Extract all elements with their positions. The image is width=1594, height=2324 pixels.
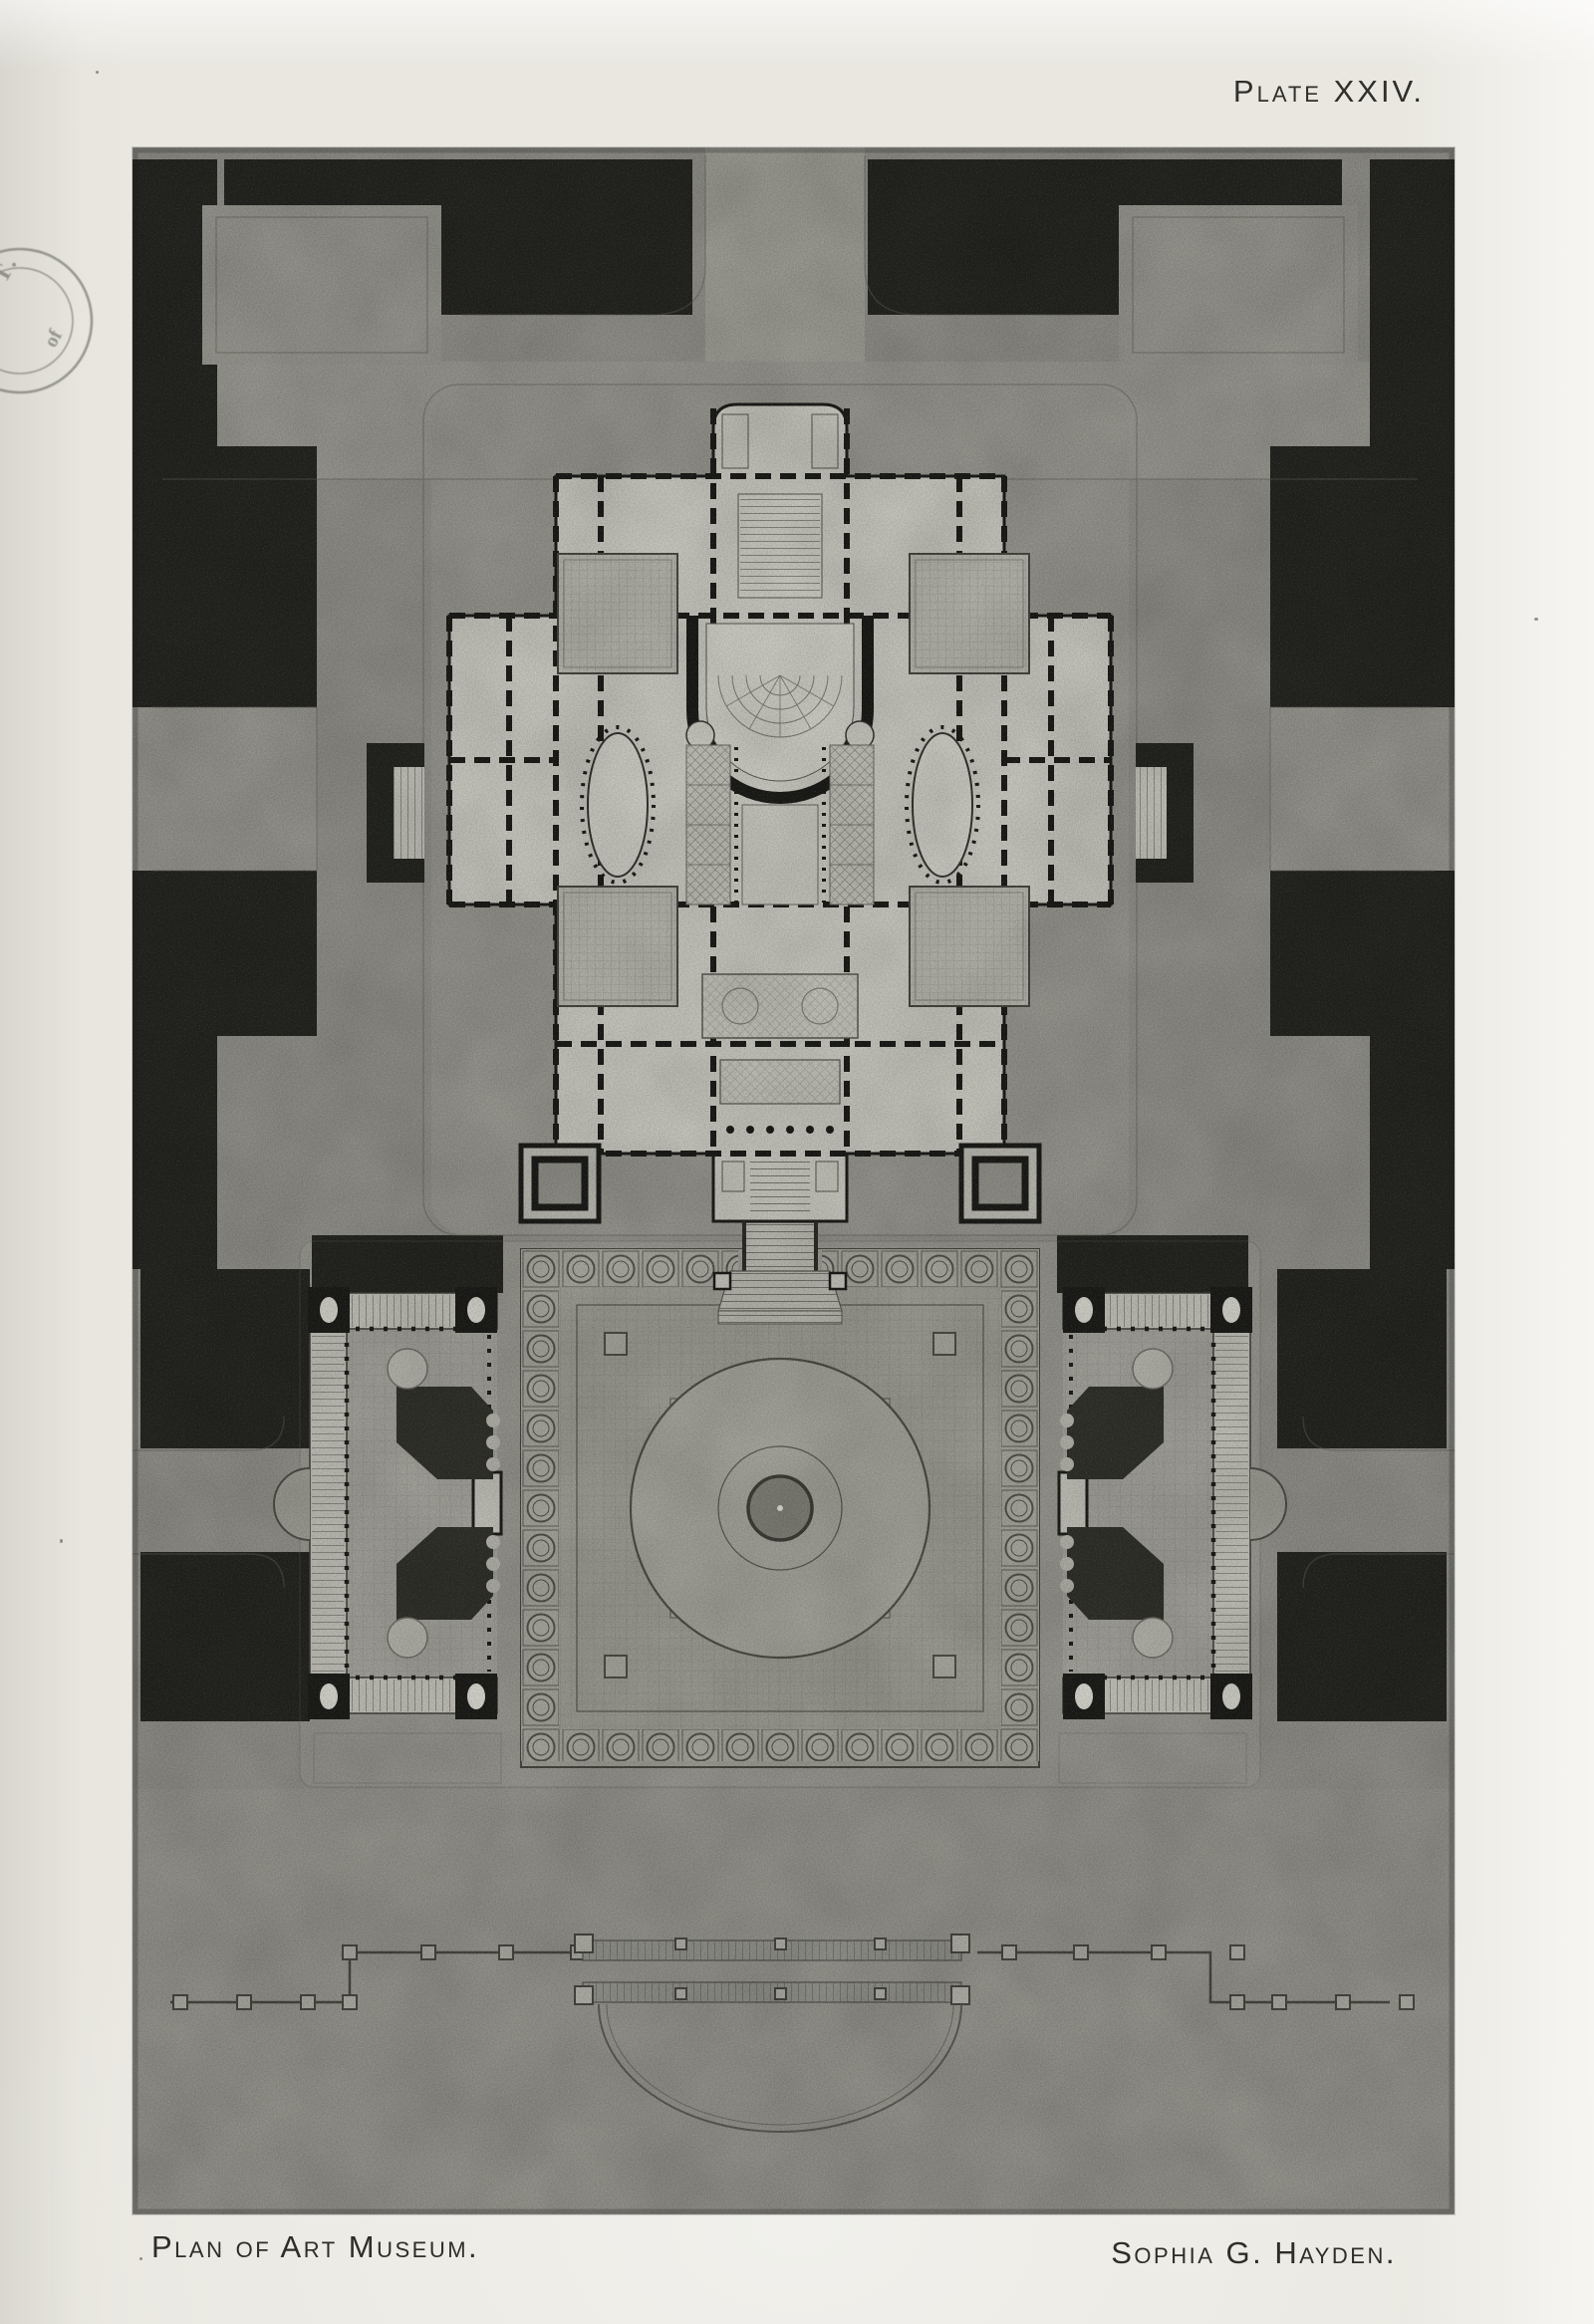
scanned-page: M. I. T. of Plate XXIV. <box>0 0 1594 2324</box>
medallion-border-top-left <box>521 1249 738 1287</box>
medallion-border-top-right <box>822 1249 1039 1287</box>
paper-speck <box>139 2257 142 2260</box>
tree-mass-right-upper <box>1370 159 1455 741</box>
paper-speck <box>60 1539 63 1543</box>
caption-title: Plan of Art Museum. <box>151 2229 479 2265</box>
tree-mass-right-road-south <box>1277 1552 1447 1721</box>
plate-image <box>133 147 1455 2214</box>
stamp-word-text: of <box>40 326 67 351</box>
medallion-border-left <box>521 1287 559 1723</box>
paper-speck <box>96 71 99 74</box>
medallion-border-right <box>1001 1287 1039 1723</box>
vestibule-floor <box>702 974 858 1217</box>
side-plaza-left <box>133 707 317 871</box>
caption-architect: Sophia G. Hayden. <box>1111 2235 1397 2271</box>
library-stamp: M. I. T. of <box>0 225 132 424</box>
paper-speck <box>1534 618 1538 621</box>
forecourt <box>521 1249 1039 1767</box>
entrance-avenue <box>705 147 865 362</box>
side-plaza-right <box>1270 707 1455 871</box>
plate-number: Plate XXIV. <box>1233 74 1425 110</box>
stamp-institution-text: M. I. T. <box>0 250 24 357</box>
plan-drawing <box>133 147 1455 2214</box>
tree-mass-left-road-south <box>140 1552 310 1721</box>
